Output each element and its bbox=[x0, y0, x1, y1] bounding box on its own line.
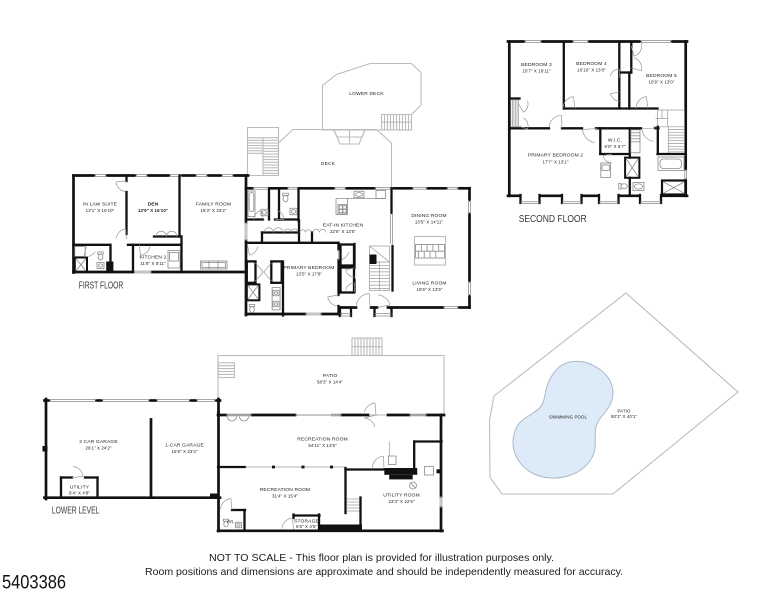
svg-text:Room positions and dimensions: Room positions and dimensions are approx… bbox=[145, 567, 623, 578]
svg-text:KITCHEN 2: KITCHEN 2 bbox=[140, 255, 167, 261]
svg-text:6'4" X 4'8": 6'4" X 4'8" bbox=[69, 491, 90, 496]
svg-text:PATIO: PATIO bbox=[617, 409, 631, 414]
svg-text:50'1" X 40'1": 50'1" X 40'1" bbox=[611, 414, 637, 419]
svg-text:DECK: DECK bbox=[321, 161, 336, 167]
svg-text:23'3" X 22'5": 23'3" X 22'5" bbox=[388, 499, 414, 504]
svg-text:EAT-IN KITCHEN: EAT-IN KITCHEN bbox=[323, 223, 364, 229]
svg-text:PRIMARY BEDROOM: PRIMARY BEDROOM bbox=[284, 265, 335, 271]
svg-text:LOWER LEVEL: LOWER LEVEL bbox=[52, 506, 100, 517]
svg-text:1-CAR GARAGE: 1-CAR GARAGE bbox=[165, 443, 204, 449]
svg-text:UTILITY ROOM: UTILITY ROOM bbox=[383, 493, 420, 499]
svg-text:BEDROOM 3: BEDROOM 3 bbox=[521, 62, 552, 68]
svg-text:PATIO: PATIO bbox=[323, 373, 338, 379]
svg-text:58'3" X 14'4": 58'3" X 14'4" bbox=[317, 380, 343, 385]
svg-text:10'9" X 13'0": 10'9" X 13'0" bbox=[648, 80, 674, 85]
svg-text:SWIMMING POOL: SWIMMING POOL bbox=[549, 415, 588, 420]
svg-text:22'6" X 13'5": 22'6" X 13'5" bbox=[330, 229, 356, 234]
svg-text:26'1" X 24'2": 26'1" X 24'2" bbox=[85, 446, 111, 451]
svg-text:6'0" X 5'7": 6'0" X 5'7" bbox=[604, 144, 625, 149]
svg-text:PR.: PR. bbox=[227, 520, 235, 525]
svg-text:IN LAW SUITE: IN LAW SUITE bbox=[83, 202, 118, 208]
svg-text:RECREATION ROOM: RECREATION ROOM bbox=[260, 487, 311, 493]
svg-text:13'5" X 17'8": 13'5" X 17'8" bbox=[296, 272, 322, 277]
svg-text:17'7" X 13'1": 17'7" X 13'1" bbox=[542, 160, 568, 165]
svg-text:19'5" X 13'5": 19'5" X 13'5" bbox=[416, 287, 442, 292]
svg-text:LIVING ROOM: LIVING ROOM bbox=[412, 281, 446, 287]
svg-text:16'3" X 23'2": 16'3" X 23'2" bbox=[200, 208, 226, 213]
svg-text:SECOND FLOOR: SECOND FLOOR bbox=[519, 214, 587, 225]
svg-text:31'4" X 15'4": 31'4" X 15'4" bbox=[272, 494, 298, 499]
svg-text:54'11" X 13'5": 54'11" X 13'5" bbox=[308, 443, 337, 448]
svg-text:BEDROOM 4: BEDROOM 4 bbox=[576, 61, 607, 67]
svg-text:FIRST FLOOR: FIRST FLOOR bbox=[79, 280, 124, 291]
svg-text:13'9" X 16'10": 13'9" X 16'10" bbox=[138, 208, 168, 213]
svg-text:W.I.C.: W.I.C. bbox=[608, 138, 622, 144]
svg-text:DINING ROOM: DINING ROOM bbox=[411, 213, 446, 219]
svg-text:FAMILY ROOM: FAMILY ROOM bbox=[196, 202, 231, 208]
svg-text:10'7" X 16'11": 10'7" X 16'11" bbox=[522, 69, 551, 74]
svg-text:11'8" X 8'11": 11'8" X 8'11" bbox=[140, 261, 166, 266]
svg-text:2 CAR GARAGE: 2 CAR GARAGE bbox=[79, 439, 118, 445]
svg-text:LOWER DECK: LOWER DECK bbox=[349, 91, 384, 97]
svg-text:DEN: DEN bbox=[148, 202, 159, 208]
svg-text:6'5" X 4'5": 6'5" X 4'5" bbox=[296, 524, 317, 529]
svg-text:PRIMARY BEDROOM 2: PRIMARY BEDROOM 2 bbox=[528, 153, 583, 159]
svg-text:RECREATION ROOM: RECREATION ROOM bbox=[297, 437, 348, 443]
svg-text:5403386: 5403386 bbox=[2, 573, 66, 594]
svg-text:13'1" X 16'10": 13'1" X 16'10" bbox=[86, 208, 115, 213]
svg-text:NOT TO SCALE - This floor plan: NOT TO SCALE - This floor plan is provid… bbox=[209, 553, 554, 564]
svg-text:10'10" X 13'0": 10'10" X 13'0" bbox=[577, 68, 606, 73]
svg-text:15'9" X 23'2": 15'9" X 23'2" bbox=[171, 449, 197, 454]
svg-text:BEDROOM 5: BEDROOM 5 bbox=[646, 73, 677, 79]
svg-text:13'5" X 14'11": 13'5" X 14'11" bbox=[415, 220, 444, 225]
